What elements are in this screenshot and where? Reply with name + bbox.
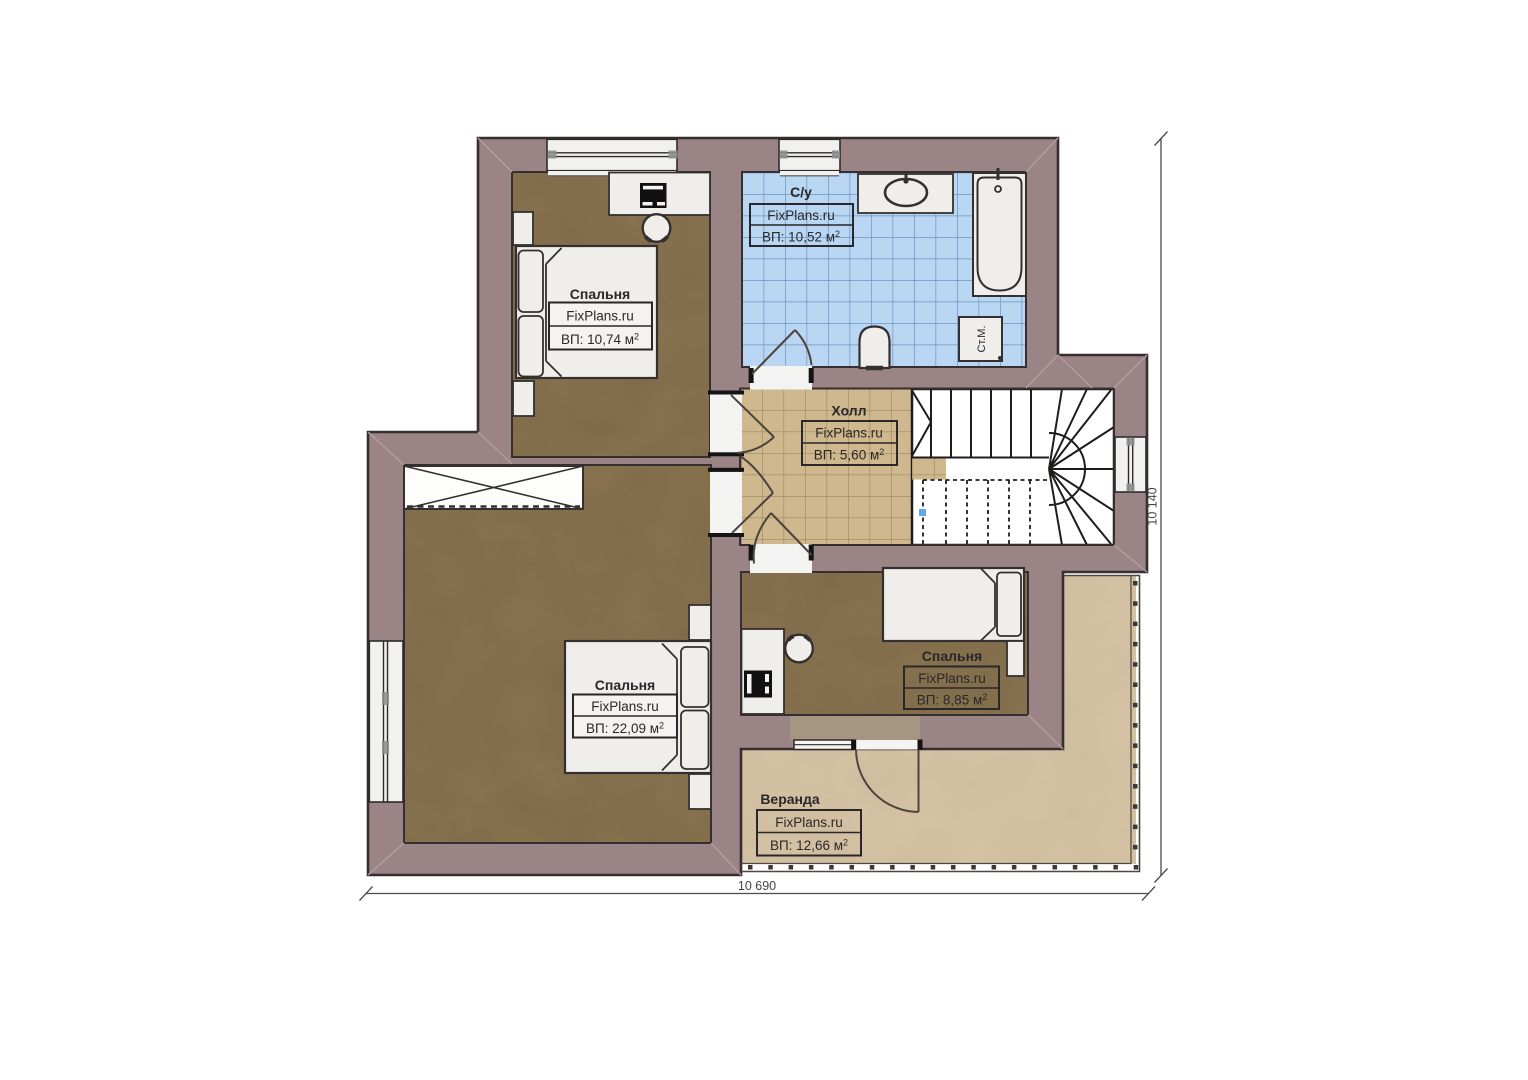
svg-text:FixPlans.ru: FixPlans.ru <box>775 815 843 830</box>
svg-text:ВП: 10,52 м2: ВП: 10,52 м2 <box>762 229 840 245</box>
svg-text:Ст.М.: Ст.М. <box>976 325 988 352</box>
svg-text:FixPlans.ru: FixPlans.ru <box>767 208 835 223</box>
svg-text:ВП: 8,85 м2: ВП: 8,85 м2 <box>917 692 988 708</box>
svg-text:Спальня: Спальня <box>570 286 630 302</box>
svg-text:ВП: 12,66 м2: ВП: 12,66 м2 <box>770 838 848 854</box>
svg-text:FixPlans.ru: FixPlans.ru <box>566 309 634 324</box>
svg-text:Веранда: Веранда <box>760 791 820 807</box>
svg-text:ВП: 22,09 м2: ВП: 22,09 м2 <box>586 721 664 737</box>
svg-text:ВП: 5,60 м2: ВП: 5,60 м2 <box>814 447 885 463</box>
svg-text:FixPlans.ru: FixPlans.ru <box>591 699 659 714</box>
svg-text:10 140: 10 140 <box>1146 487 1160 525</box>
svg-text:FixPlans.ru: FixPlans.ru <box>815 426 883 441</box>
svg-text:С/у: С/у <box>790 184 812 200</box>
svg-text:ВП: 10,74 м2: ВП: 10,74 м2 <box>561 332 639 348</box>
svg-text:Холл: Холл <box>831 403 866 419</box>
svg-text:Спальня: Спальня <box>595 677 655 693</box>
svg-text:Спальня: Спальня <box>922 648 982 664</box>
svg-text:10 690: 10 690 <box>738 879 776 893</box>
svg-text:FixPlans.ru: FixPlans.ru <box>918 671 986 686</box>
